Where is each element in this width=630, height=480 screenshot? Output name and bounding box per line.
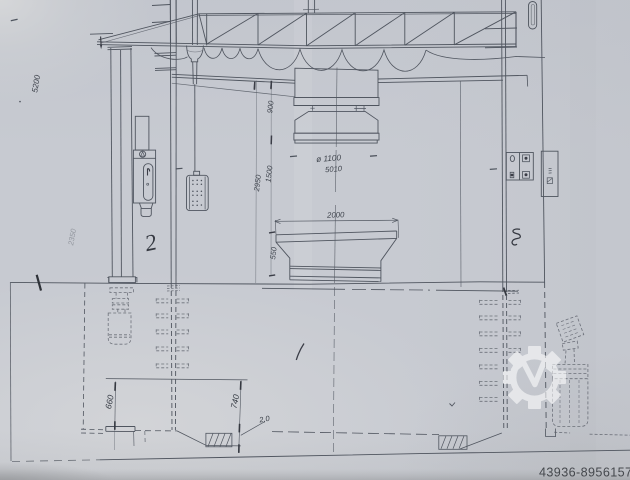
svg-text:2000: 2000 — [326, 210, 345, 220]
svg-text:43936-8956157: 43936-8956157 — [539, 466, 630, 480]
svg-text:ø 1100: ø 1100 — [316, 153, 342, 164]
svg-text:550: 550 — [268, 246, 279, 260]
svg-text:900: 900 — [265, 99, 276, 113]
svg-text:5010: 5010 — [325, 164, 343, 174]
